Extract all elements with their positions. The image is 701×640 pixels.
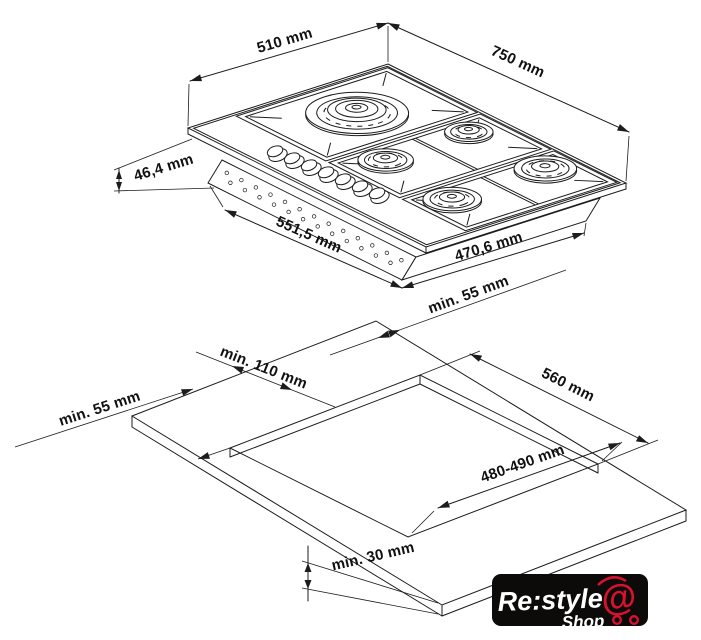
dim-label-750: 750 mm — [488, 42, 547, 81]
dim-label-min55-left: min. 55 mm — [57, 388, 143, 430]
dimension-min55-back: min. 55 mm — [330, 270, 566, 355]
dim-label-cutout-560: 560 mm — [539, 365, 598, 406]
hob-isometric-view: 510 mm 750 mm 46,4 mm 551,5 mm — [114, 23, 629, 288]
dim-label-510: 510 mm — [255, 25, 315, 57]
logo-shop-text: Shop — [561, 612, 604, 632]
worktop-cutout-view: 560 mm 480-490 mm min. 55 mm min. 110 mm — [15, 270, 686, 616]
restyle-shop-logo: Re:style @ Shop — [492, 574, 648, 632]
product-dimension-diagram: 510 mm 750 mm 46,4 mm 551,5 mm — [0, 0, 701, 640]
dimension-height-464: 46,4 mm — [114, 139, 214, 193]
dim-label-height: 46,4 mm — [132, 151, 196, 185]
